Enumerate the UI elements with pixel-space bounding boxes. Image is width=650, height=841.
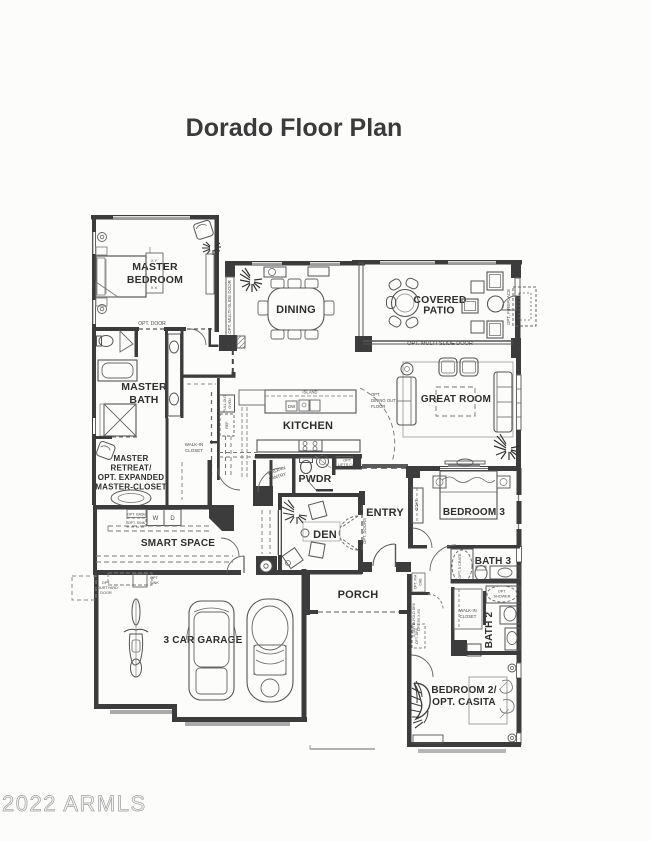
svg-text:CLOSET: CLOSET bbox=[185, 448, 203, 453]
svg-text:PWDR: PWDR bbox=[299, 473, 332, 485]
svg-text:PORCH: PORCH bbox=[338, 589, 379, 601]
svg-text:OPT. MULTI-SLIDE DOOR: OPT. MULTI-SLIDE DOOR bbox=[407, 341, 473, 347]
svg-text:X Y: X Y bbox=[151, 258, 158, 263]
svg-text:OPT. BASE: OPT. BASE bbox=[127, 513, 146, 517]
svg-text:OPT.: OPT. bbox=[343, 459, 351, 463]
svg-text:SINK: SINK bbox=[150, 581, 159, 585]
svg-text:OPT. FIREPLACE: OPT. FIREPLACE bbox=[506, 289, 511, 325]
svg-text:OPT. R/A: OPT. R/A bbox=[414, 574, 418, 589]
svg-text:WALK-IN: WALK-IN bbox=[185, 442, 204, 447]
svg-text:OPT. DOOR: OPT. DOOR bbox=[138, 321, 166, 327]
svg-text:OPT.: OPT. bbox=[102, 581, 110, 585]
svg-text:OPT.: OPT. bbox=[498, 590, 506, 594]
svg-text:SMART SPACE: SMART SPACE bbox=[141, 538, 215, 549]
svg-text:COURTYARD: COURTYARD bbox=[94, 586, 118, 590]
svg-text:OPT. DOORS: OPT. DOORS bbox=[362, 518, 367, 544]
svg-text:D: D bbox=[170, 516, 175, 522]
svg-text:W: W bbox=[153, 516, 159, 522]
svg-text:OPT. DRS: OPT. DRS bbox=[415, 627, 419, 644]
svg-text:OPT. EXPANDED: OPT. EXPANDED bbox=[98, 473, 164, 482]
svg-text:COAT: COAT bbox=[414, 499, 419, 511]
svg-text:BEDROOM 3: BEDROOM 3 bbox=[443, 507, 506, 518]
svg-text:OPT.: OPT. bbox=[150, 576, 158, 580]
svg-text:OPT. 8'0 X 8'0: OPT. 8'0 X 8'0 bbox=[417, 609, 421, 631]
svg-text:ISLAND: ISLAND bbox=[302, 390, 317, 395]
svg-text:3 CAR GARAGE: 3 CAR GARAGE bbox=[163, 635, 242, 646]
svg-text:CLOSET: CLOSET bbox=[460, 614, 477, 619]
svg-text:ENTRY: ENTRY bbox=[366, 507, 404, 519]
svg-text:PATIO: PATIO bbox=[423, 305, 455, 317]
svg-text:DINING: DINING bbox=[276, 304, 316, 316]
svg-text:OPT.: OPT. bbox=[371, 392, 380, 397]
svg-text:OPT. SINK: OPT. SINK bbox=[128, 521, 146, 525]
svg-text:PULL OUT: PULL OUT bbox=[223, 394, 227, 412]
svg-text:FLOOR: FLOOR bbox=[371, 404, 385, 409]
svg-text:OPT. CASITA: OPT. CASITA bbox=[432, 697, 496, 708]
svg-text:OPT. 5 CRATE: OPT. 5 CRATE bbox=[458, 553, 462, 579]
svg-text:DOOR: DOOR bbox=[100, 591, 112, 595]
svg-text:OPT. MULTI-SLIDE DOOR: OPT. MULTI-SLIDE DOOR bbox=[227, 279, 232, 333]
svg-text:2022 ARMLS: 2022 ARMLS bbox=[2, 791, 147, 816]
svg-text:SHOWER: SHOWER bbox=[493, 595, 510, 599]
svg-text:MASTER: MASTER bbox=[114, 454, 149, 463]
svg-text:Dorado Floor Plan: Dorado Floor Plan bbox=[186, 114, 403, 142]
svg-text:OVEN: OVEN bbox=[228, 398, 232, 409]
svg-text:REF: REF bbox=[225, 421, 229, 429]
svg-text:BEDROOM 2/: BEDROOM 2/ bbox=[431, 685, 496, 696]
svg-text:GREAT ROOM: GREAT ROOM bbox=[421, 394, 491, 405]
svg-text:RETREAT/: RETREAT/ bbox=[110, 464, 152, 473]
svg-text:DEN: DEN bbox=[313, 529, 337, 541]
svg-text:X X: X X bbox=[151, 285, 158, 290]
svg-text:CAB: CAB bbox=[419, 578, 423, 586]
svg-text:MASTER: MASTER bbox=[121, 381, 167, 393]
svg-text:DW: DW bbox=[288, 404, 296, 409]
svg-text:WALK-IN: WALK-IN bbox=[459, 608, 476, 613]
svg-text:DINING OUT: DINING OUT bbox=[371, 398, 396, 403]
svg-text:KITCHEN: KITCHEN bbox=[283, 420, 333, 432]
